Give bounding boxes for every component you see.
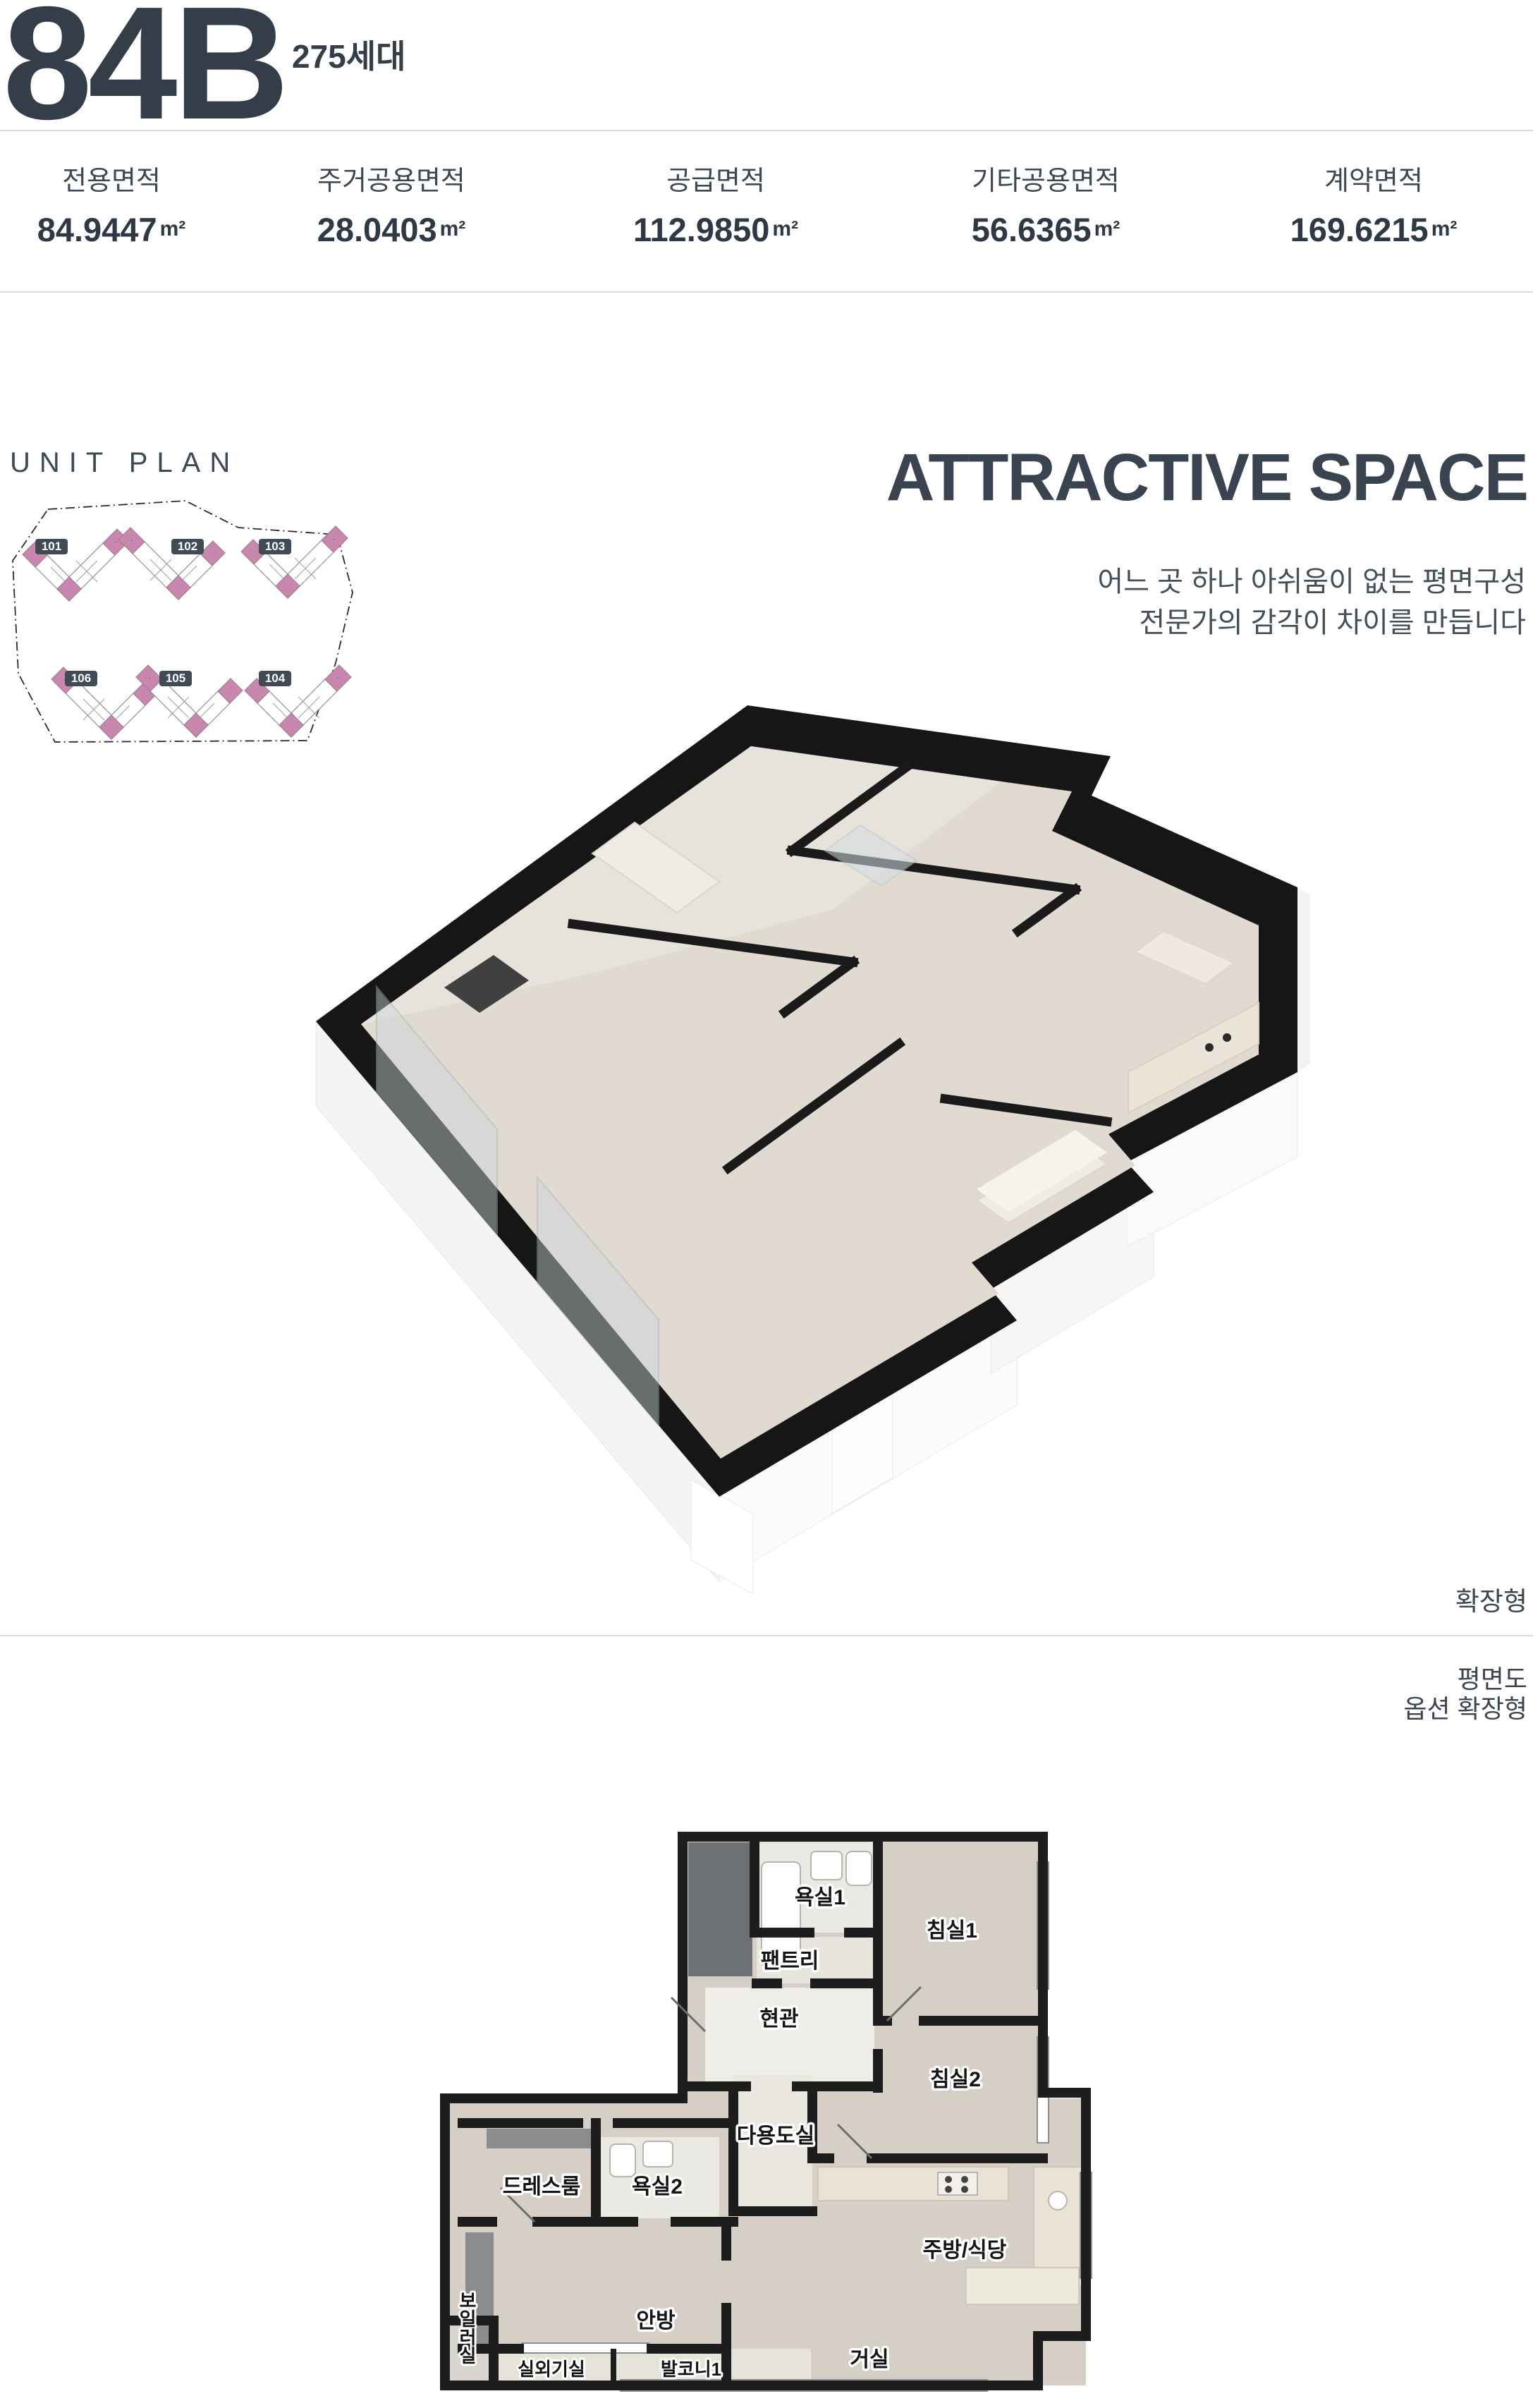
site-badge-103: 103 [259,539,291,554]
duct-shaft [688,1842,752,1976]
room-label-kitchen: 주방/식당 [923,2239,1007,2262]
brochure-page: { "header": { "unit_code": "84B", "house… [0,0,1533,2408]
site-badge-105: 105 [159,671,192,686]
room-label-bed1: 침실1 [927,1919,977,1942]
section-title: ATTRACTIVE SPACE [681,444,1527,511]
site-badge-101: 101 [35,539,68,554]
area-unit: m² [1431,217,1458,241]
iso-stove-burner [1223,1033,1231,1042]
area-col-other-common: 기타공용면적 56.6365m² [905,168,1187,246]
area-label: 주거공용면적 [250,168,532,195]
area-label: 전용면적 [0,168,252,195]
subtitle-line2: 전문가의 감각이 차이를 만듭니다 [891,602,1526,643]
floor-plan-caption-line1: 평면도 [1175,1665,1527,1694]
room-label-dressroom: 드레스룸 [503,2175,580,2199]
room-label-pantry: 팬트리 [761,1950,819,1973]
svg-text:105: 105 [166,671,185,685]
site-building-102 [118,528,225,600]
svg-text:104: 104 [265,671,286,685]
household-count: 275세대 [292,31,405,78]
dressroom-closet [487,2129,592,2148]
divider-under-table [0,291,1533,293]
area-col-common-residential: 주거공용면적 28.0403m² [250,168,532,246]
svg-text:106: 106 [71,671,91,685]
area-value: 169.6215m² [1233,213,1515,246]
iso-plan-caption: 확장형 [1175,1580,1527,1618]
area-unit: m² [160,217,186,241]
site-building-103 [241,526,348,598]
area-col-exclusive: 전용면적 84.9447m² [0,168,252,246]
room-label-ac-unit: 실외기실 [518,2359,585,2380]
area-value: 84.9447m² [0,213,252,246]
floor-entrance [705,1988,874,2086]
area-col-contract: 계약면적 169.6215m² [1233,168,1515,246]
svg-text:101: 101 [42,540,61,553]
floor-plan-caption-line2: 옵션 확장형 [1175,1694,1527,1724]
room-label-entrance: 현관 [759,2007,798,2031]
area-unit: m² [772,217,798,241]
room-label-bed2: 침실2 [930,2068,981,2091]
site-badge-104: 104 [259,671,291,686]
site-badge-102: 102 [171,539,204,554]
area-value: 112.9850m² [575,213,857,246]
room-label-bath1: 욕실1 [795,1886,845,1909]
room-label-master: 안방 [636,2309,676,2333]
room-label-balcony1: 발코니1 [661,2359,721,2380]
iso-stove-burner [1205,1043,1214,1052]
area-label: 기타공용면적 [905,168,1187,195]
unit-plan-title: UNIT PLAN [10,447,239,479]
subtitle-line1: 어느 곳 하나 아쉬움이 없는 평면구성 [891,561,1526,602]
area-label: 공급면적 [575,168,857,195]
iso-outer-wall-right [1297,887,1310,1072]
svg-text:102: 102 [178,540,197,553]
floor-plan-caption: 평면도 옵션 확장형 [1175,1665,1527,1724]
room-label-living: 거실 [850,2348,888,2371]
area-label: 계약면적 [1233,168,1515,195]
iso-floorplan-render [296,677,1326,1594]
room-label-utility: 다용도실 [737,2124,814,2148]
area-unit: m² [440,217,466,241]
area-value: 28.0403m² [250,213,532,246]
divider-top [0,130,1533,131]
svg-text:103: 103 [265,540,285,553]
page-title-unit-code: 84B [3,0,285,144]
area-col-supply: 공급면적 112.9850m² [575,168,857,246]
room-label-boiler: 보일러실 [456,2291,477,2364]
site-badge-106: 106 [65,671,97,686]
divider-mid [0,1635,1533,1636]
area-unit: m² [1094,217,1120,241]
room-label-bath2: 욕실2 [632,2175,683,2199]
area-value: 56.6365m² [905,213,1187,246]
floor-plan-2d: 욕실1 침실1 팬트리 현관 침실2 다용도실 드레스룸 욕실2 주방/식당 안… [423,1806,1114,2408]
section-subtitle: 어느 곳 하나 아쉬움이 없는 평면구성 전문가의 감각이 차이를 만듭니다 [891,561,1526,643]
